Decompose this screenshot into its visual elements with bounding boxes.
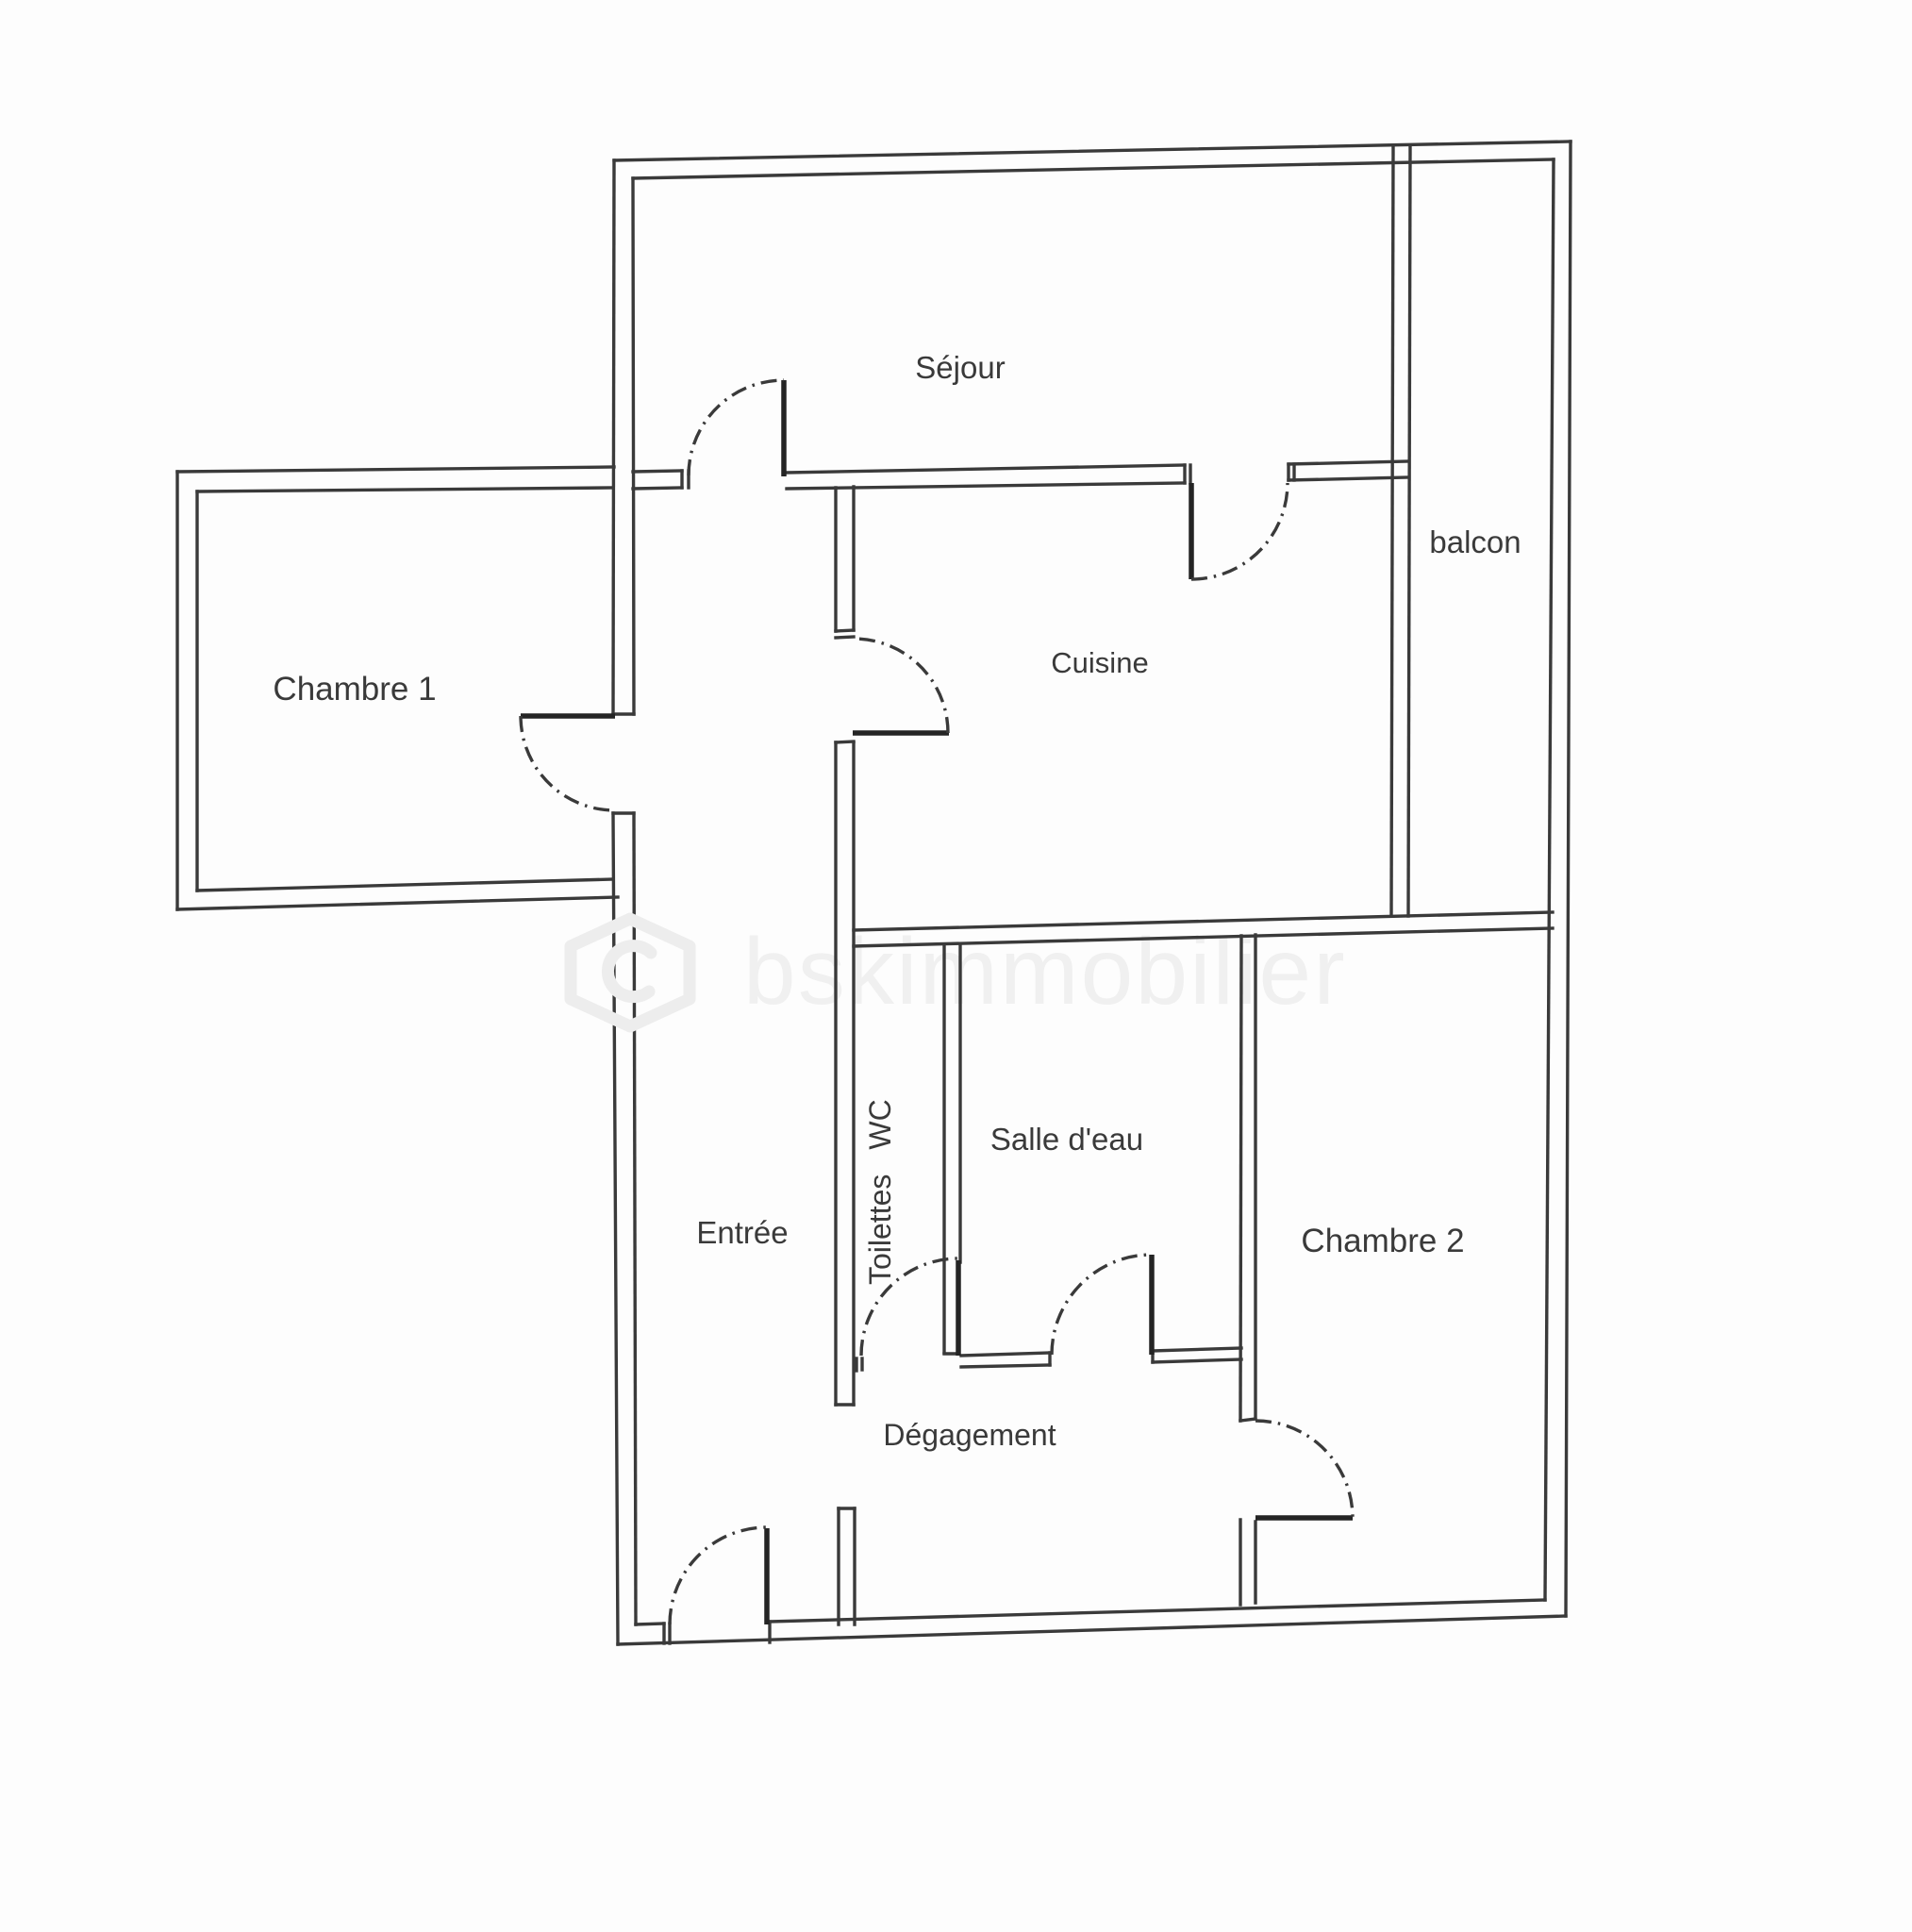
- svg-text:Séjour: Séjour: [915, 350, 1005, 385]
- svg-text:Chambre 2: Chambre 2: [1301, 1223, 1464, 1259]
- svg-text:Entrée: Entrée: [696, 1215, 788, 1250]
- svg-text:Salle d'eau: Salle d'eau: [990, 1122, 1143, 1157]
- svg-text:balcon: balcon: [1429, 525, 1521, 559]
- svg-text:Cuisine: Cuisine: [1051, 646, 1148, 679]
- svg-text:ToilettesWC: ToilettesWC: [863, 1099, 897, 1285]
- svg-text:Chambre 1: Chambre 1: [273, 671, 436, 708]
- svg-text:Dégagement: Dégagement: [883, 1418, 1056, 1452]
